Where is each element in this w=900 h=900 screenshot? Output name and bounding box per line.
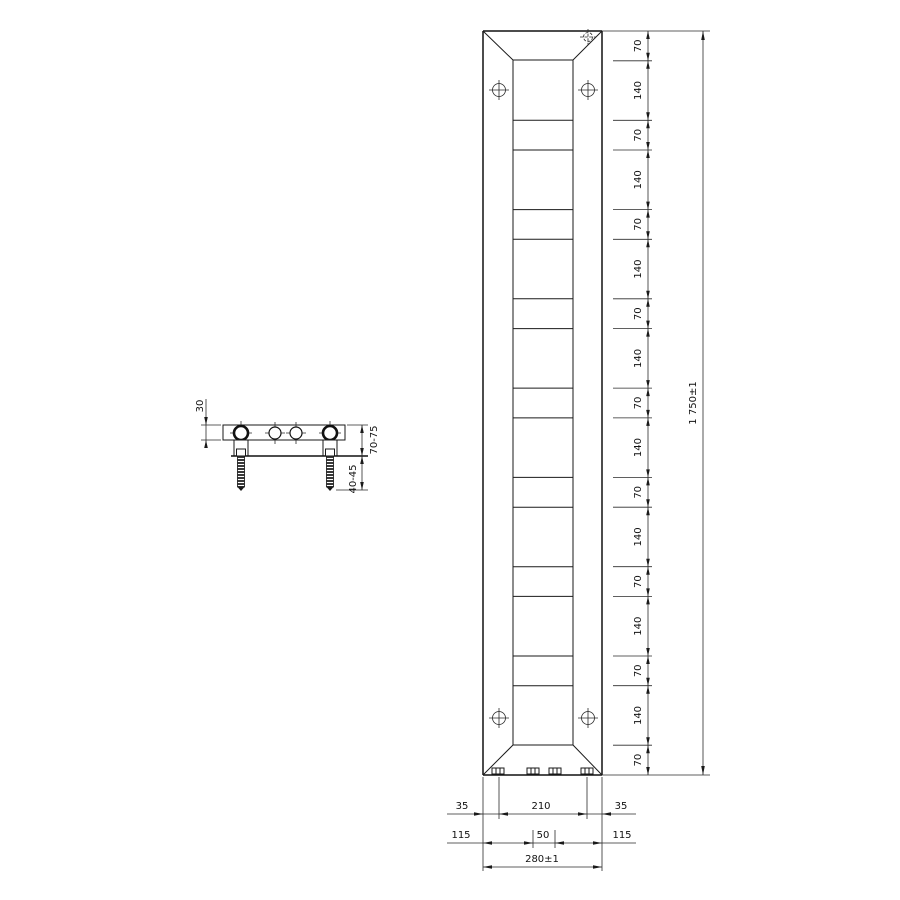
arrow <box>646 239 650 247</box>
dimension-depth: 30 <box>195 399 221 448</box>
chain-segment-label: 140 <box>633 260 644 279</box>
arrow <box>646 648 650 656</box>
chain-segments: 7014070140701407014070140701407014070140… <box>613 31 652 775</box>
radiator-technical-drawing: 30 70-75 40-45 <box>0 0 900 900</box>
bolt-tip <box>238 487 245 491</box>
chain-segment-label: 70 <box>633 307 644 320</box>
bolt-thread <box>238 456 245 487</box>
mounting-point-icon <box>489 80 509 100</box>
dim-label: 40-45 <box>348 464 359 493</box>
arrow <box>646 61 650 69</box>
mounting-point-icon <box>578 708 598 728</box>
pipe-connection-icon <box>234 426 248 440</box>
front-view <box>483 29 602 775</box>
chain-segment-label: 140 <box>633 81 644 100</box>
dim-label: 30 <box>195 400 206 413</box>
total-height-label: 1 750±1 <box>688 381 699 424</box>
arrow <box>646 507 650 515</box>
dim-label: 50 <box>537 830 550 841</box>
arrow <box>646 329 650 337</box>
chain-segment-label: 140 <box>633 706 644 725</box>
chain-segment-label: 140 <box>633 438 644 457</box>
arrow <box>646 31 650 39</box>
arrow <box>483 841 492 845</box>
bevel-line <box>483 745 513 775</box>
chain-segment-label: 70 <box>633 575 644 588</box>
arrow <box>646 745 650 753</box>
arrow <box>555 841 564 845</box>
arrow <box>646 567 650 575</box>
chain-segment-label: 70 <box>633 486 644 499</box>
arrow <box>646 469 650 477</box>
chain-segment-label: 140 <box>633 349 644 368</box>
arrow <box>360 425 364 433</box>
chain-segment-label: 140 <box>633 617 644 636</box>
arrow <box>646 686 650 694</box>
arrow <box>701 766 705 775</box>
arrow <box>646 380 650 388</box>
arrow <box>646 588 650 596</box>
dim-label: 115 <box>612 830 631 841</box>
arrow <box>578 812 587 816</box>
chain-segment-label: 70 <box>633 40 644 53</box>
arrow <box>646 150 650 158</box>
mounting-point-icon <box>578 80 598 100</box>
chain-segment-label: 70 <box>633 397 644 410</box>
arrow <box>524 841 533 845</box>
arrow <box>646 499 650 507</box>
arrow <box>646 210 650 218</box>
arrow <box>646 596 650 604</box>
bottom-dimensions: 35 210 35 115 50 115 280±1 <box>447 777 636 871</box>
arrow <box>646 737 650 745</box>
arrow <box>499 812 508 816</box>
arrow <box>602 812 611 816</box>
mounting-point-icon <box>489 708 509 728</box>
dim-label: 35 <box>456 801 469 812</box>
arrow <box>646 142 650 150</box>
arrow <box>646 767 650 775</box>
chain-segment-label: 70 <box>633 218 644 231</box>
arrow <box>646 410 650 418</box>
pipe-connection-icon <box>323 426 337 440</box>
bolt-head <box>326 449 335 456</box>
side-view: 30 70-75 40-45 <box>195 399 380 494</box>
arrow <box>646 291 650 299</box>
total-width-label: 280±1 <box>525 854 559 865</box>
bolt-tip <box>327 487 334 491</box>
dim-label: 210 <box>531 801 550 812</box>
connection-stub-icon <box>492 768 504 774</box>
chain-segment-label: 70 <box>633 129 644 142</box>
arrow <box>646 559 650 567</box>
dim-label: 115 <box>451 830 470 841</box>
pipe-connection-icon <box>269 427 281 439</box>
arrow <box>646 53 650 61</box>
chain-segment-label: 140 <box>633 527 644 546</box>
dim-label: 35 <box>615 801 628 812</box>
panel-divider-lines <box>513 120 573 685</box>
connection-stub-icon <box>581 768 593 774</box>
technical-drawing-page: 30 70-75 40-45 <box>0 0 900 900</box>
anchor-bolt <box>326 449 335 491</box>
bolt-thread <box>327 456 334 487</box>
dim-label: 70-75 <box>369 425 380 454</box>
arrow <box>646 120 650 128</box>
arrow <box>360 448 364 456</box>
arrow <box>646 112 650 120</box>
total-height-dimension: 1 750±1 <box>688 31 705 775</box>
dimension-wall-clearance: 70-75 <box>347 425 380 456</box>
dimension-anchor-length: 40-45 <box>336 456 368 494</box>
bevel-line <box>483 31 513 60</box>
arrow <box>646 656 650 664</box>
arrow <box>646 418 650 426</box>
arrow <box>646 202 650 210</box>
bevel-line <box>573 745 602 775</box>
connection-stub-icon <box>549 768 561 774</box>
arrow <box>593 841 602 845</box>
bolt-head <box>237 449 246 456</box>
arrow <box>646 299 650 307</box>
chain-segment-label: 70 <box>633 664 644 677</box>
arrow <box>646 388 650 396</box>
arrow <box>646 321 650 329</box>
arrow <box>483 865 492 869</box>
chain-segment-label: 140 <box>633 170 644 189</box>
connection-stub-icon <box>527 768 539 774</box>
arrow <box>204 440 208 448</box>
chain-segment-label: 70 <box>633 754 644 767</box>
anchor-bolt <box>237 449 246 491</box>
arrow <box>701 31 705 40</box>
arrow <box>646 477 650 485</box>
arrow <box>593 865 602 869</box>
arrow <box>474 812 483 816</box>
arrow <box>360 482 364 490</box>
arrow <box>646 678 650 686</box>
arrow <box>360 456 364 464</box>
arrow <box>646 231 650 239</box>
arrow <box>204 417 208 425</box>
pipe-connection-icon <box>290 427 302 439</box>
